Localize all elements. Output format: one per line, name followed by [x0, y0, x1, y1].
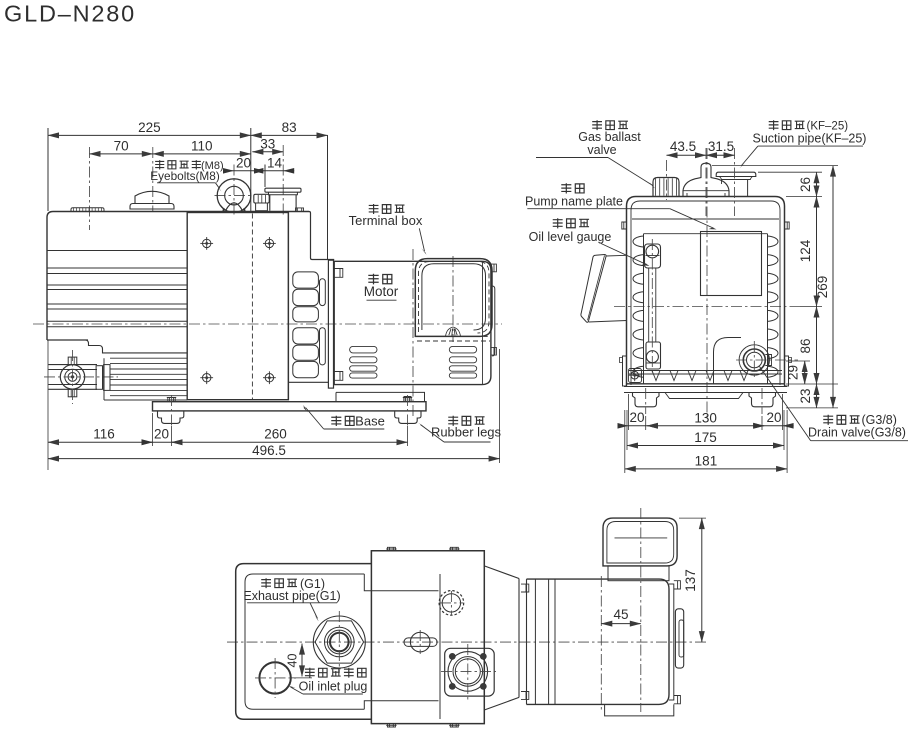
svg-text:40: 40: [286, 654, 300, 668]
svg-text:260: 260: [264, 426, 287, 441]
svg-text:valve: valve: [587, 143, 616, 157]
svg-text:181: 181: [695, 453, 718, 468]
svg-text:124: 124: [798, 239, 813, 262]
svg-text:Oil inlet plug: Oil inlet plug: [299, 680, 368, 694]
svg-text:269: 269: [815, 276, 830, 299]
svg-text:Eyebolts(M8): Eyebolts(M8): [150, 169, 220, 183]
svg-text:Drain valve(G3/8): Drain valve(G3/8): [808, 426, 906, 440]
svg-text:175: 175: [694, 430, 717, 445]
svg-text:23: 23: [798, 388, 813, 403]
svg-text:110: 110: [191, 138, 213, 153]
svg-text:20: 20: [236, 156, 251, 171]
svg-text:Pump name plate: Pump name plate: [525, 195, 623, 209]
svg-text:45: 45: [613, 607, 628, 622]
svg-text:31.5: 31.5: [708, 139, 734, 154]
svg-text:225: 225: [138, 120, 161, 135]
svg-text:20: 20: [766, 410, 781, 425]
svg-text:Terminal box: Terminal box: [349, 213, 423, 228]
svg-text:43.5: 43.5: [670, 139, 696, 154]
svg-text:83: 83: [282, 120, 297, 135]
svg-text:GLD–N280: GLD–N280: [4, 1, 136, 27]
svg-text:130: 130: [694, 410, 717, 425]
svg-text:Base: Base: [355, 414, 385, 429]
svg-text:Suction pipe(KF–25): Suction pipe(KF–25): [753, 132, 867, 146]
svg-text:29: 29: [786, 365, 801, 380]
svg-text:20: 20: [154, 426, 169, 441]
svg-text:86: 86: [798, 338, 813, 353]
svg-text:Oil level gauge: Oil level gauge: [529, 230, 612, 244]
svg-text:116: 116: [93, 426, 115, 441]
svg-text:Gas ballast: Gas ballast: [578, 130, 641, 144]
svg-text:Rubber legs: Rubber legs: [431, 425, 502, 440]
svg-text:70: 70: [114, 138, 129, 153]
svg-text:14: 14: [267, 156, 283, 171]
svg-text:33: 33: [260, 136, 275, 151]
svg-text:Motor: Motor: [364, 284, 399, 299]
svg-text:20: 20: [629, 410, 644, 425]
svg-text:496.5: 496.5: [252, 443, 286, 458]
svg-text:137: 137: [683, 569, 698, 592]
svg-text:Exhaust pipe(G1): Exhaust pipe(G1): [243, 589, 340, 603]
svg-text:26: 26: [798, 177, 813, 192]
